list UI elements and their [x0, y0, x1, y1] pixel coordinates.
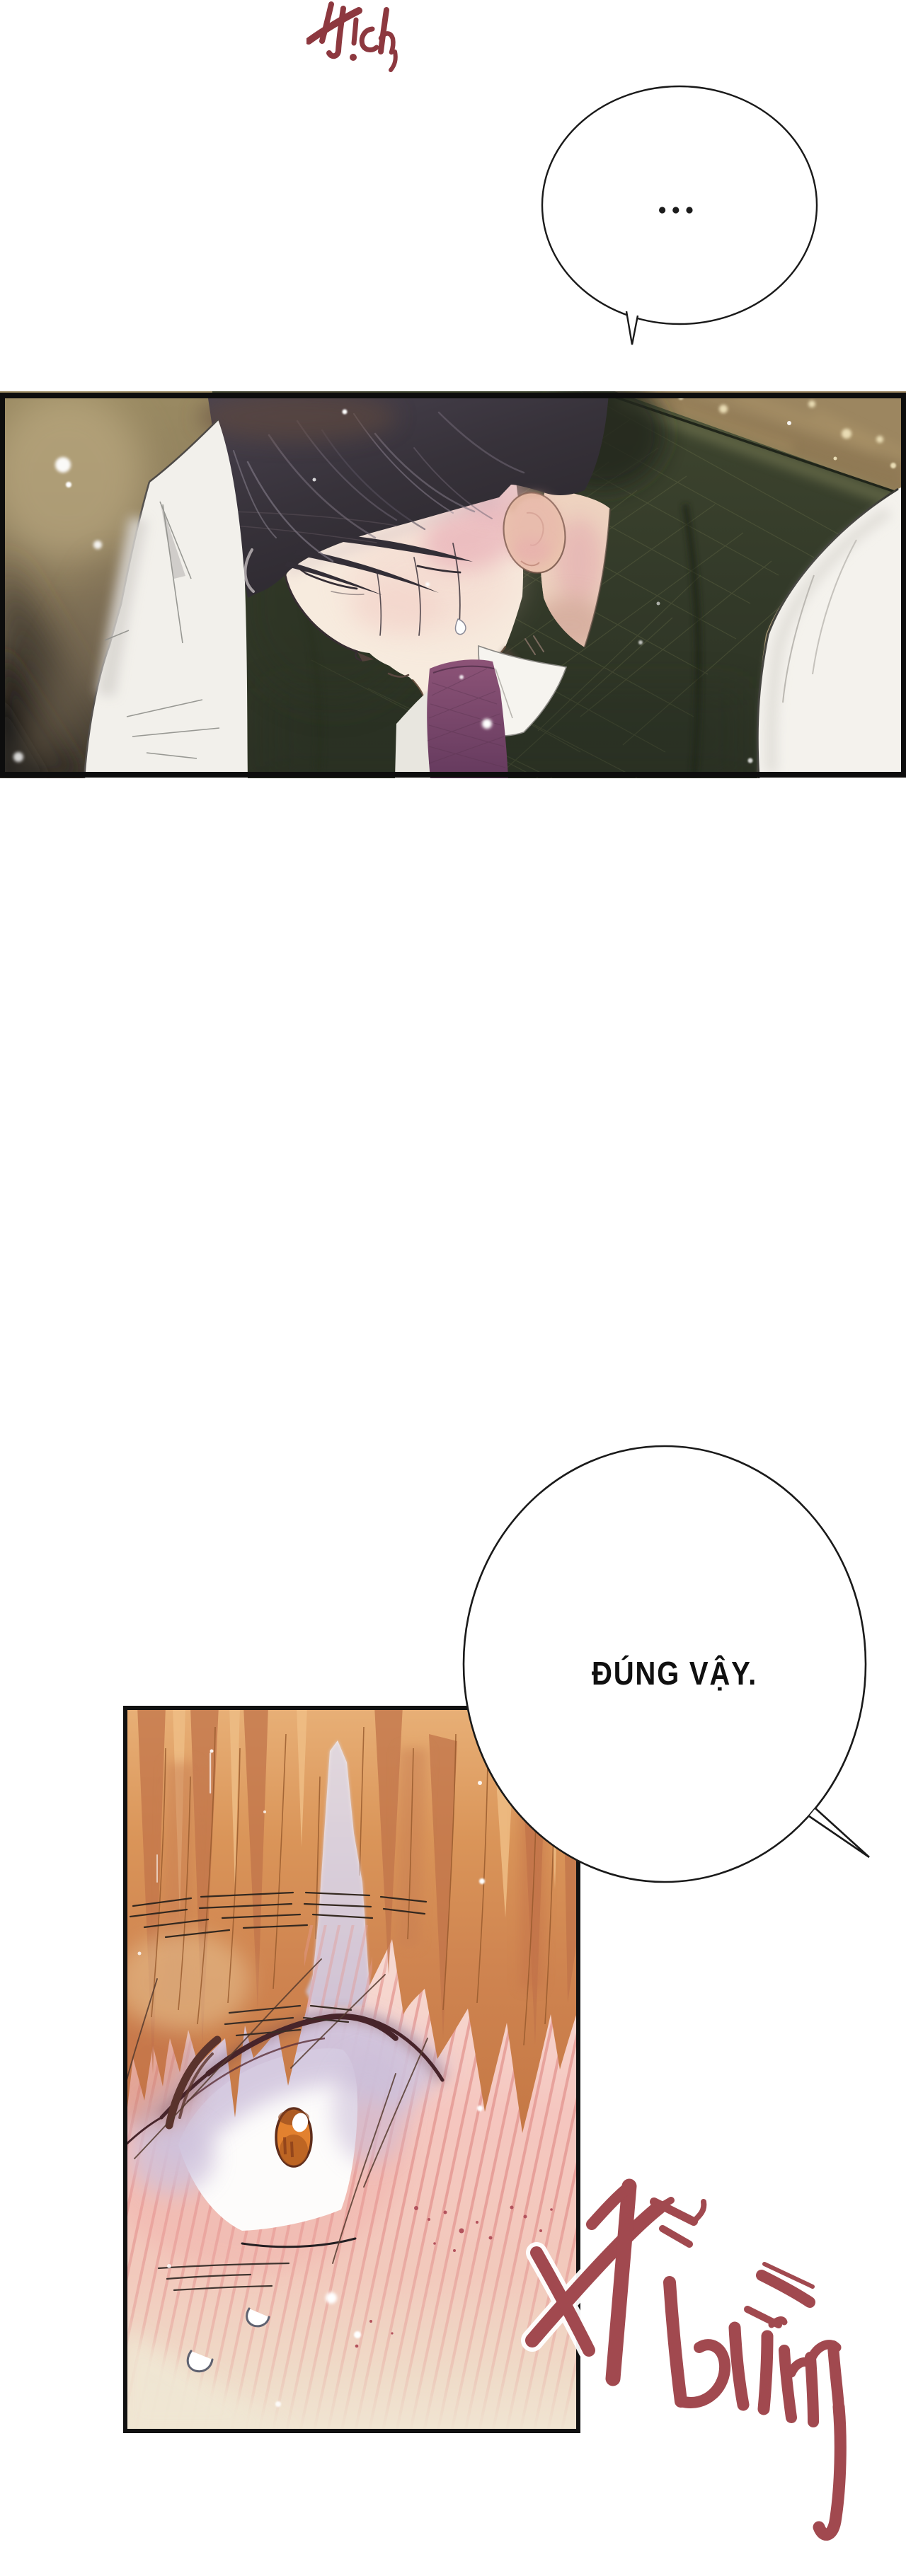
svg-text:ĐÚNG VẬY.: ĐÚNG VẬY.: [592, 1655, 757, 1692]
